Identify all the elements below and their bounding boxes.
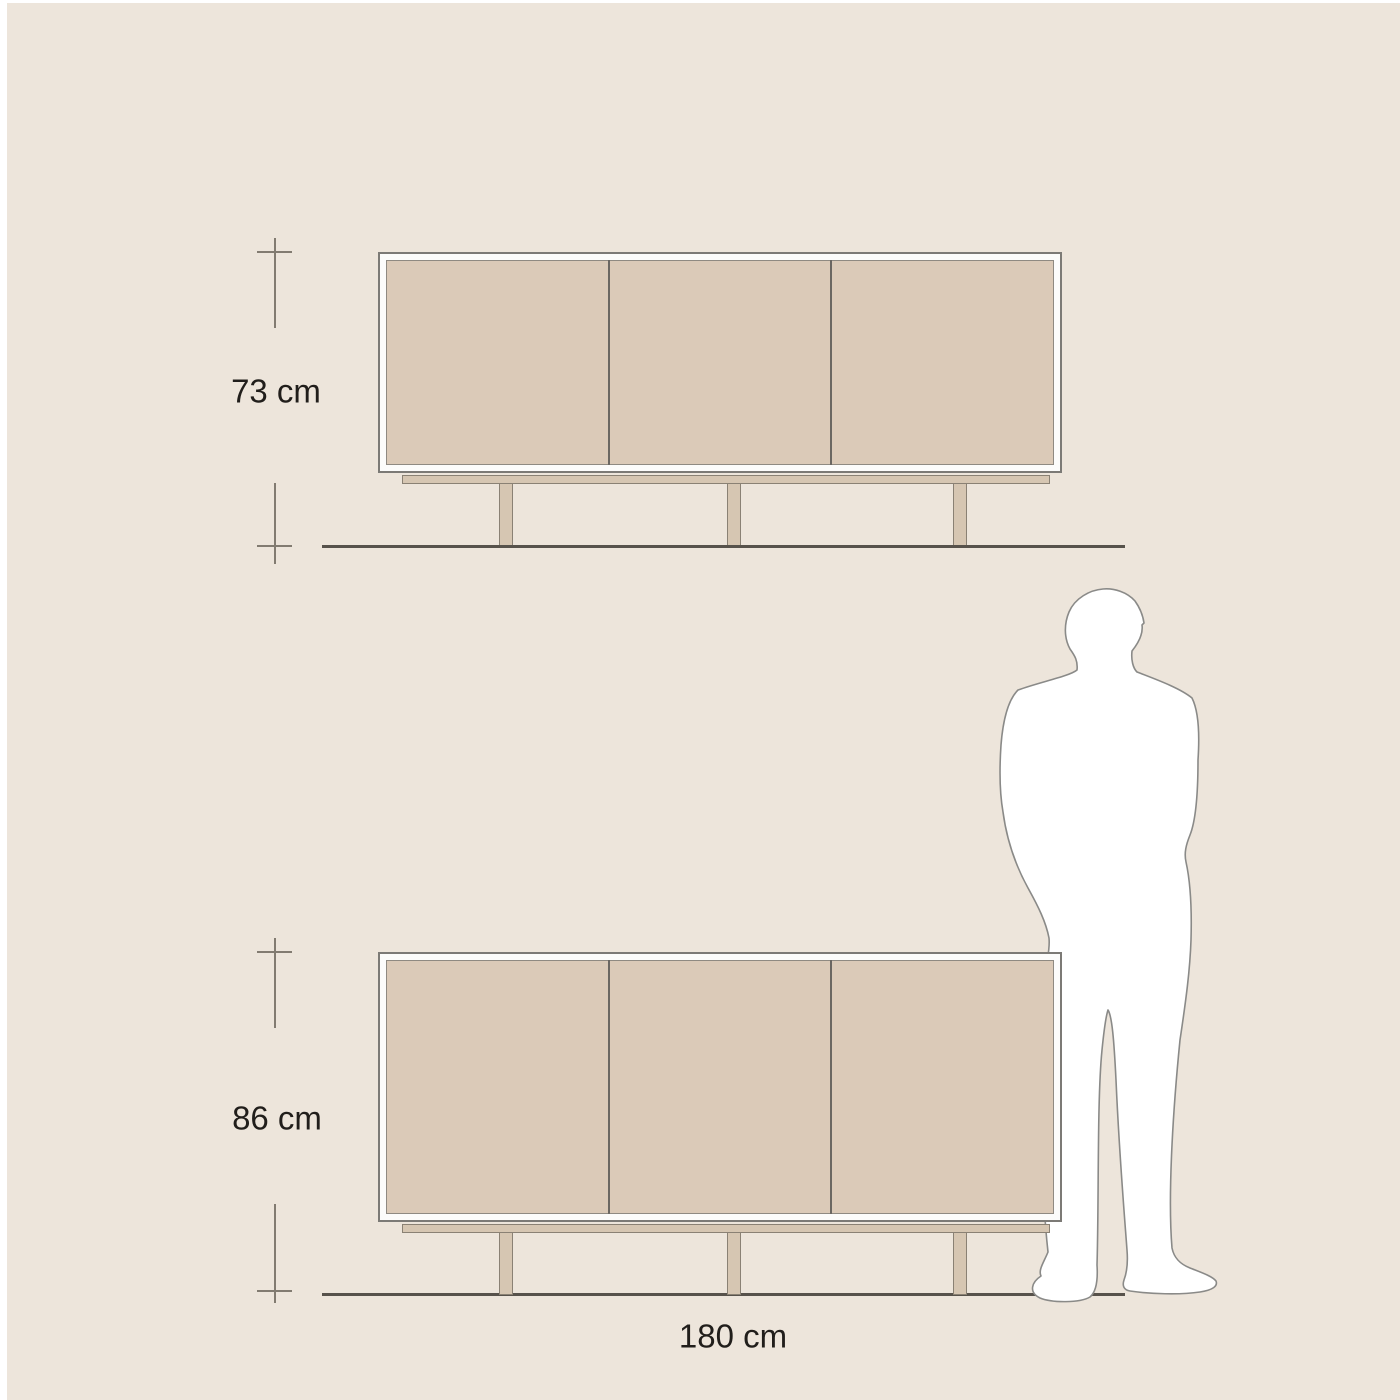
man-silhouette-icon <box>995 585 1235 1305</box>
dimension-drawing: 73 cm 86 cm 180 cm <box>0 0 1400 1400</box>
